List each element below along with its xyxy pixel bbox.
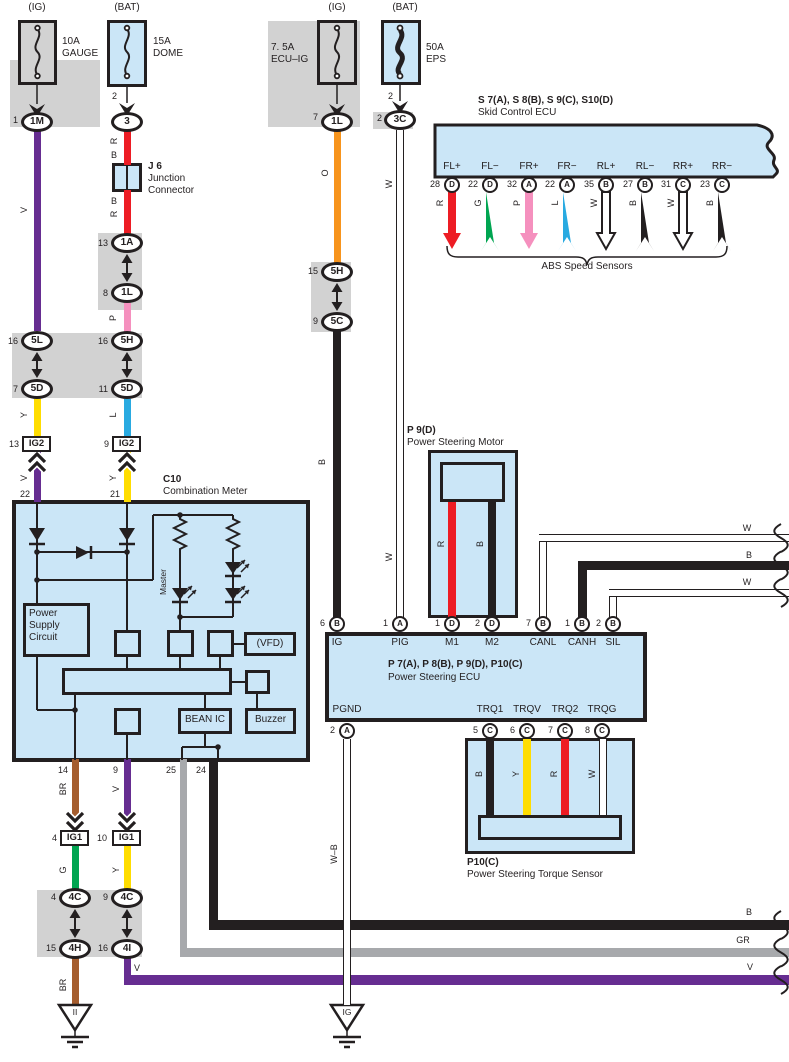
- pin-circle: A: [559, 177, 575, 193]
- pin-number: 1: [2, 114, 18, 126]
- ecu-pin-label: IG: [317, 637, 357, 649]
- wiring-diagram: 1M 3 1L 3C 1A 1L 5L 5D 5H 5D 5H 5C 4C 4H…: [0, 0, 789, 1062]
- meter-ic-box: [114, 630, 141, 657]
- pin-circle: D: [482, 177, 498, 193]
- fuse-eps-box: [381, 20, 421, 85]
- wire-sil-horiz: [609, 589, 789, 597]
- arrow-rr-minus: [713, 192, 731, 251]
- wire-code: R: [109, 134, 119, 148]
- meter-ic-box: [207, 630, 234, 657]
- pin-number: 7: [511, 617, 531, 629]
- motor-inner-box: [440, 462, 505, 502]
- fuse-tap-label: (IG): [12, 2, 62, 14]
- wire-code: Y: [108, 471, 118, 485]
- wire-code: GR: [728, 934, 758, 946]
- wire-y-ig1: [124, 844, 131, 890]
- arrow-fr-plus: [520, 192, 538, 249]
- wire-br-ground: [72, 957, 79, 1005]
- meter-name: Combination Meter: [163, 486, 247, 498]
- pin-number: 6: [495, 724, 515, 736]
- wire-v-gauge: [34, 131, 41, 331]
- connector-5d-b: 5D: [111, 379, 143, 399]
- pin-number: 8: [570, 724, 590, 736]
- wire-br-14: [72, 759, 79, 830]
- connector-5h-b: 5H: [111, 331, 143, 351]
- wire-code: W: [587, 767, 597, 781]
- ecu-pin-label: TRQV: [507, 704, 547, 716]
- fuse-name: EPS: [426, 54, 446, 66]
- pin-number: 9: [304, 315, 318, 327]
- pin-number: 32: [497, 178, 517, 190]
- pin-number: 25: [152, 764, 176, 776]
- wire-code: P: [512, 196, 522, 210]
- connector-5h-c: 5H: [321, 262, 353, 282]
- wire-code: W: [384, 550, 394, 564]
- fuse-rating: 7. 5A: [271, 42, 294, 54]
- connector-4c-right: 4C: [111, 888, 143, 908]
- pin-number: 7: [4, 383, 18, 395]
- meter-bus-bar: [62, 668, 232, 695]
- arrow-rl-minus: [636, 192, 654, 251]
- pin-number: 1: [420, 617, 440, 629]
- wire-v-9: [124, 759, 131, 830]
- wire-canl-horiz: [539, 534, 789, 542]
- wire-code: W: [733, 576, 761, 588]
- pin-number: 2: [112, 90, 117, 102]
- wire-code: G: [473, 196, 483, 210]
- meter-ic-box: [245, 670, 270, 694]
- junction-name: Junction: [148, 173, 185, 185]
- pin-circle: A: [339, 723, 355, 739]
- connector-1m: 1M: [21, 112, 53, 132]
- wire-code: B: [474, 767, 484, 781]
- wire-v-meter22: [34, 452, 41, 502]
- ground-label: II: [67, 1006, 83, 1018]
- wire-trq1: [486, 739, 494, 818]
- connector-5c: 5C: [321, 312, 353, 332]
- sensor-ref: P10(C): [467, 857, 499, 869]
- fuse-rating: 50A: [426, 42, 444, 54]
- wire-code: B: [107, 195, 121, 207]
- wire-code: Y: [111, 863, 121, 877]
- wire-code: B: [735, 549, 763, 561]
- connector-1l: 1L: [111, 283, 143, 303]
- wire-canh-vert: [578, 563, 587, 619]
- fuse-name: GAUGE: [62, 48, 98, 60]
- wire-p: [124, 303, 131, 333]
- pin-number: 22: [458, 178, 478, 190]
- wire-w-pig: [396, 130, 404, 619]
- ecu-pin-label: TRQ1: [470, 704, 510, 716]
- ecu-pin-label: TRQ2: [545, 704, 585, 716]
- psc-label: Circuit: [29, 632, 57, 644]
- bean-ic-label: BEAN IC: [180, 714, 230, 726]
- wire-gr-horiz: [180, 948, 789, 957]
- ig1-box-left: IG1: [60, 830, 89, 846]
- wire-r-dome-upper: [124, 131, 131, 165]
- meter-ic-box: [167, 630, 194, 657]
- fuse-name: DOME: [153, 48, 183, 60]
- wire-code: B: [628, 196, 638, 210]
- connector-1l-fuse: 1L: [321, 112, 353, 132]
- ecu-pin-label: PGND: [327, 704, 367, 716]
- junction-name: Connector: [148, 185, 194, 197]
- fuse-gauge-box: [18, 20, 57, 85]
- pin-circle: B: [598, 177, 614, 193]
- pin-number: 13: [0, 438, 19, 450]
- wire-code: R: [435, 196, 445, 210]
- fuse-tap-label: (BAT): [379, 2, 431, 14]
- wire-gr-vert: [180, 759, 187, 954]
- junction-id: J 6: [148, 161, 162, 173]
- connector-4h: 4H: [59, 939, 91, 959]
- skid-pin-label: RR+: [663, 161, 703, 173]
- wire-code: BR: [58, 779, 68, 799]
- wire-canl-vert: [539, 536, 547, 619]
- wire-code: W: [384, 177, 394, 191]
- connector-3: 3: [111, 112, 143, 132]
- wire-code: O: [320, 166, 330, 180]
- skid-pin-label: FR+: [509, 161, 549, 173]
- buzzer-label: Buzzer: [247, 714, 294, 726]
- wire-code: R: [436, 537, 446, 551]
- wire-code: V: [19, 471, 29, 485]
- pin-circle: B: [329, 616, 345, 632]
- wire-y-gauge: [34, 399, 41, 437]
- wire-b-vert: [209, 759, 218, 926]
- ig2-box-left: IG2: [22, 436, 51, 452]
- pin-number: 7: [533, 724, 553, 736]
- pin-number: 21: [98, 488, 120, 500]
- pin-number: 9: [96, 764, 118, 776]
- wire-b-ig: [333, 331, 341, 619]
- torque-sensor-inner-box: [478, 815, 622, 840]
- wire-trqv: [523, 739, 531, 818]
- junction-connector-box: [112, 163, 142, 192]
- wire-code: B: [317, 455, 327, 469]
- pin-number: 2: [366, 112, 382, 124]
- pin-number: 2: [388, 90, 393, 102]
- skid-pin-label: FR−: [547, 161, 587, 173]
- wire-l: [124, 399, 131, 437]
- pin-number: 16: [90, 335, 108, 347]
- pin-number: 24: [184, 764, 206, 776]
- pin-circle: C: [594, 723, 610, 739]
- pin-circle: C: [675, 177, 691, 193]
- wire-code: B: [735, 906, 763, 918]
- wire-code: V: [19, 203, 29, 217]
- wire-code: W: [589, 196, 599, 210]
- wire-code: V: [111, 782, 121, 796]
- wire-code: L: [108, 408, 118, 422]
- fuse-tap-label: (IG): [312, 2, 362, 14]
- wire-code: B: [107, 149, 121, 161]
- pin-number: 28: [420, 178, 440, 190]
- arrow-fl-plus: [443, 192, 461, 249]
- arrow-rl-plus: [597, 192, 615, 249]
- vfd-label: (VFD): [246, 638, 294, 650]
- meter-ref: C10: [163, 474, 181, 486]
- pin-number: 4: [43, 832, 57, 844]
- connector-5d-a: 5D: [21, 379, 53, 399]
- pin-number: 22: [8, 488, 30, 500]
- wire-code: G: [58, 863, 68, 877]
- fuse-rating: 15A: [153, 36, 171, 48]
- pin-number: 31: [651, 178, 671, 190]
- ecu-pin-label: M2: [472, 637, 512, 649]
- connector-3c: 3C: [384, 110, 416, 130]
- abs-sensor-arrows: [443, 192, 731, 251]
- wire-code: Y: [511, 767, 521, 781]
- wire-code: V: [134, 962, 140, 974]
- pin-number: 9: [95, 438, 109, 450]
- pin-number: 27: [613, 178, 633, 190]
- wire-code: W: [666, 196, 676, 210]
- pin-number: 9: [96, 891, 108, 903]
- wire-code: R: [109, 207, 119, 221]
- skid-pin-label: FL+: [432, 161, 472, 173]
- skid-pin-label: RR−: [702, 161, 742, 173]
- wire-wb-pgnd: [343, 739, 351, 1005]
- ground-label: IG: [339, 1006, 355, 1018]
- wire-code: R: [549, 767, 559, 781]
- pin-number: 16: [90, 942, 108, 954]
- connector-4i: 4I: [111, 939, 143, 959]
- pin-circle: D: [444, 616, 460, 632]
- connector-4c-left: 4C: [59, 888, 91, 908]
- wire-g: [72, 844, 79, 890]
- pin-circle: B: [535, 616, 551, 632]
- skid-pin-label: RL+: [586, 161, 626, 173]
- motor-name: Power Steering Motor: [407, 437, 504, 449]
- wire-code: BR: [58, 975, 68, 995]
- pin-number: 5: [458, 724, 478, 736]
- wire-o: [334, 131, 341, 264]
- skid-pin-label: RL−: [625, 161, 665, 173]
- wire-code: W: [733, 522, 761, 534]
- pin-number: 8: [94, 287, 108, 299]
- pin-number: 23: [690, 178, 710, 190]
- wire-code: B: [705, 196, 715, 210]
- ecu-pin-label: TRQG: [582, 704, 622, 716]
- pin-number: 2: [315, 724, 335, 736]
- pin-number: 6: [305, 617, 325, 629]
- fuse-dome-box: [107, 20, 147, 87]
- pin-number: 15: [40, 942, 56, 954]
- wire-r-m1: [448, 500, 456, 619]
- wire-y-meter21: [124, 452, 131, 502]
- meter-ic-box: [114, 708, 141, 735]
- connector-5l: 5L: [21, 331, 53, 351]
- wire-code: P: [108, 311, 118, 325]
- pin-number: 4: [44, 891, 56, 903]
- pin-number: 35: [574, 178, 594, 190]
- skid-ecu-title: S 7(A), S 8(B), S 9(C), S10(D): [478, 95, 613, 107]
- wire-b-m2: [488, 500, 496, 619]
- ecu-pin-label: M1: [432, 637, 472, 649]
- wire-trqg: [599, 739, 607, 818]
- wire-trq2: [561, 739, 569, 818]
- pin-number: 11: [92, 383, 108, 395]
- psc-label: Power: [29, 608, 57, 620]
- wire-code: L: [550, 196, 560, 210]
- ecu-pin-label: SIL: [593, 637, 633, 649]
- pin-number: 10: [88, 832, 107, 844]
- arrow-fr-minus: [558, 192, 576, 251]
- wire-code: V: [736, 961, 764, 973]
- ps-ecu-name: Power Steering ECU: [388, 672, 480, 684]
- motor-ref: P 9(D): [407, 425, 436, 437]
- ig1-box-right: IG1: [112, 830, 141, 846]
- wire-r-dome-lower: [124, 190, 131, 235]
- wire-v-out-horiz: [124, 975, 789, 985]
- ecu-pin-label: CANL: [523, 637, 563, 649]
- fuse-ecuig-box: [317, 20, 357, 85]
- connector-1a: 1A: [111, 233, 143, 253]
- pin-number: 15: [302, 265, 318, 277]
- arrow-rr-plus: [674, 192, 692, 249]
- pin-number: 22: [535, 178, 555, 190]
- skid-pin-label: FL−: [470, 161, 510, 173]
- wire-code: Y: [19, 408, 29, 422]
- pin-circle: A: [392, 616, 408, 632]
- pin-circle: C: [714, 177, 730, 193]
- pin-circle: B: [605, 616, 621, 632]
- abs-brace-label: ABS Speed Sensors: [512, 261, 662, 273]
- pin-number: 16: [0, 335, 18, 347]
- psc-label: Supply: [29, 620, 60, 632]
- skid-ecu-name: Skid Control ECU: [478, 107, 556, 119]
- pin-number: 1: [550, 617, 570, 629]
- pin-number: 2: [460, 617, 480, 629]
- ig2-box-right: IG2: [112, 436, 141, 452]
- wire-b-horiz: [209, 920, 789, 930]
- pin-number: 13: [90, 237, 108, 249]
- pin-circle: D: [484, 616, 500, 632]
- wire-code: B: [475, 537, 485, 551]
- wire-code: W–B: [329, 841, 339, 867]
- pin-number: 2: [581, 617, 601, 629]
- fuse-name: ECU–IG: [271, 54, 308, 66]
- pin-number: 14: [46, 764, 68, 776]
- fuse-rating: 10A: [62, 36, 80, 48]
- wire-canh-horiz: [578, 561, 789, 570]
- fuse-tap-label: (BAT): [101, 2, 153, 14]
- arrow-fl-minus: [481, 192, 499, 251]
- pin-number: 7: [302, 111, 318, 123]
- ps-ecu-ref: P 7(A), P 8(B), P 9(D), P10(C): [388, 659, 522, 671]
- master-label: Master: [158, 560, 168, 604]
- pin-number: 1: [368, 617, 388, 629]
- sensor-name: Power Steering Torque Sensor: [467, 869, 603, 881]
- ecu-pin-label: PIG: [380, 637, 420, 649]
